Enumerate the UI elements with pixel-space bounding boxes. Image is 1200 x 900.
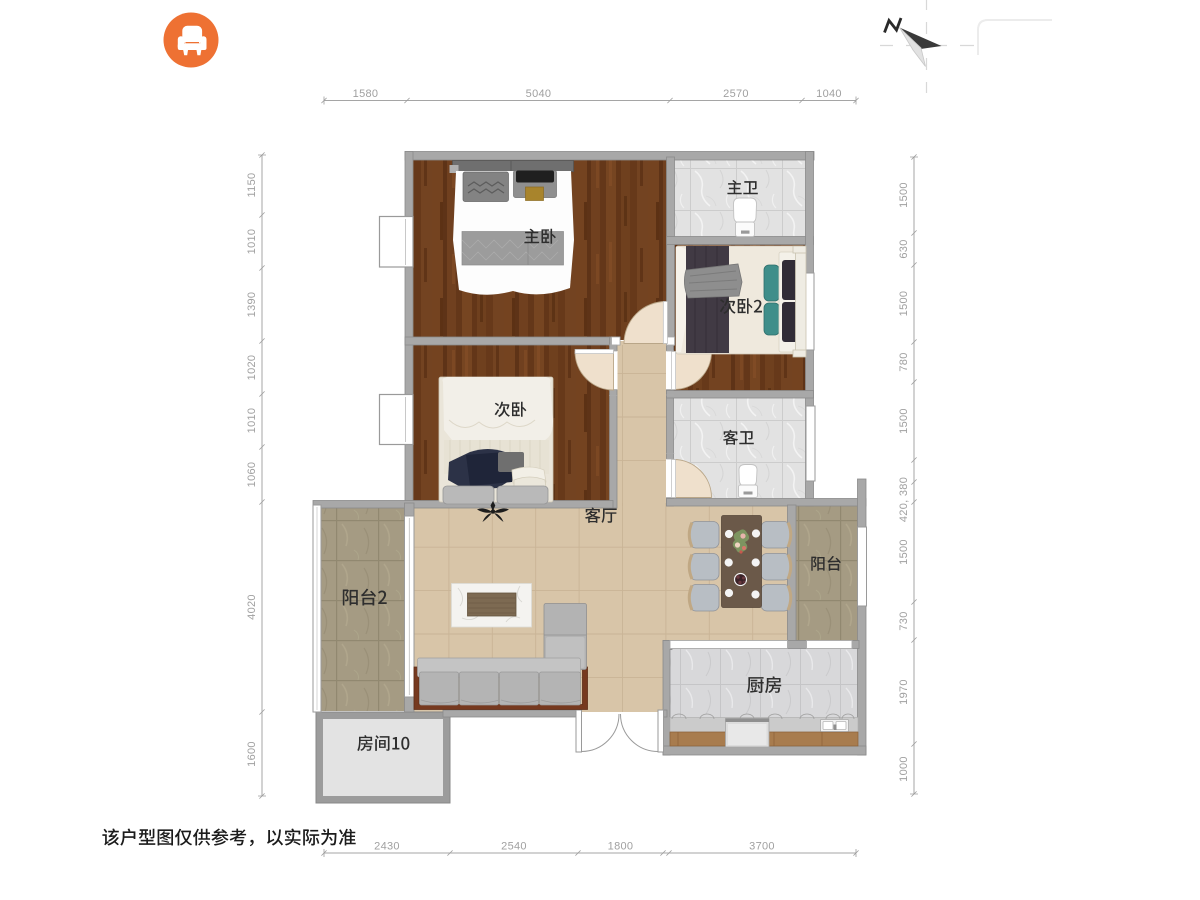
svg-text:1390: 1390 bbox=[246, 292, 258, 318]
svg-text:420, 380: 420, 380 bbox=[898, 477, 910, 522]
svg-text:3700: 3700 bbox=[749, 841, 775, 853]
svg-text:1010: 1010 bbox=[246, 229, 258, 255]
svg-text:2540: 2540 bbox=[501, 841, 527, 853]
svg-text:1500: 1500 bbox=[898, 182, 910, 208]
svg-text:1600: 1600 bbox=[246, 741, 258, 767]
svg-text:780: 780 bbox=[898, 352, 910, 371]
svg-text:1500: 1500 bbox=[898, 291, 910, 317]
svg-text:1500: 1500 bbox=[898, 408, 910, 434]
svg-text:5040: 5040 bbox=[526, 88, 552, 100]
svg-text:1970: 1970 bbox=[898, 679, 910, 705]
svg-text:4020: 4020 bbox=[246, 594, 258, 620]
svg-text:1060: 1060 bbox=[246, 462, 258, 488]
svg-text:1040: 1040 bbox=[816, 88, 842, 100]
svg-text:2430: 2430 bbox=[374, 841, 400, 853]
svg-text:1000: 1000 bbox=[898, 756, 910, 782]
svg-text:1020: 1020 bbox=[246, 355, 258, 381]
svg-text:1500: 1500 bbox=[898, 539, 910, 565]
svg-text:1800: 1800 bbox=[608, 841, 634, 853]
svg-text:730: 730 bbox=[898, 611, 910, 630]
svg-text:1150: 1150 bbox=[246, 173, 258, 198]
svg-text:2570: 2570 bbox=[723, 88, 749, 100]
svg-text:1580: 1580 bbox=[353, 88, 379, 100]
svg-text:1010: 1010 bbox=[246, 408, 258, 434]
svg-text:630: 630 bbox=[898, 239, 910, 258]
